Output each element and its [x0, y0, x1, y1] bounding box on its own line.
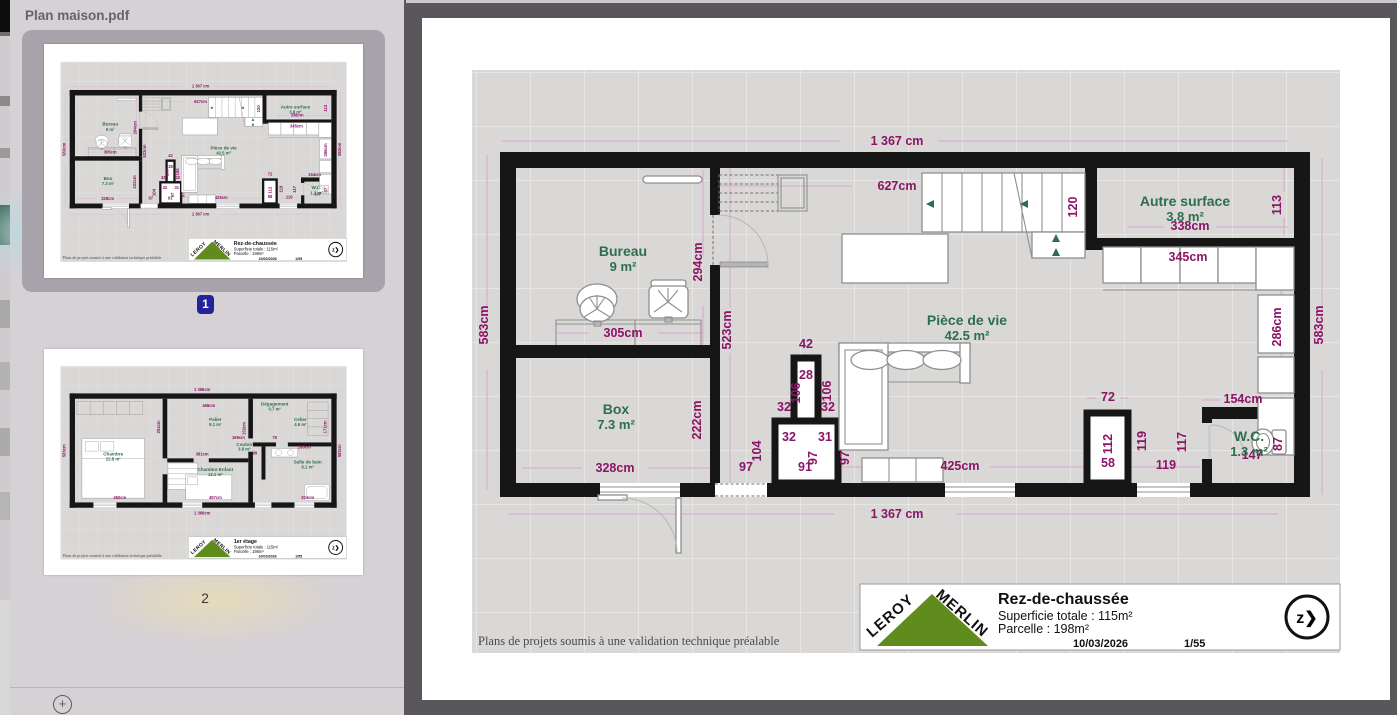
main-page-art [422, 18, 1390, 700]
viewer-top-strip [406, 0, 1397, 3]
background-app-sliver [0, 0, 10, 715]
sidebar-divider [10, 687, 404, 688]
document-title: Plan maison.pdf [25, 8, 129, 23]
thumbnail-page-1-selected[interactable] [22, 30, 385, 292]
page-number-label: 2 [130, 590, 280, 606]
page-number-badge: 1 [197, 295, 214, 314]
thumbnail-page-1-preview [44, 44, 363, 278]
thumbnail-sidebar: Plan maison.pdf 1 2 + [10, 0, 404, 715]
thumbnail-page-2[interactable] [44, 349, 363, 575]
add-page-button[interactable]: + [53, 695, 72, 714]
main-page-floor-plan[interactable]: LEROY MERLIN Rez-de-chaussée Superficie … [422, 18, 1390, 700]
